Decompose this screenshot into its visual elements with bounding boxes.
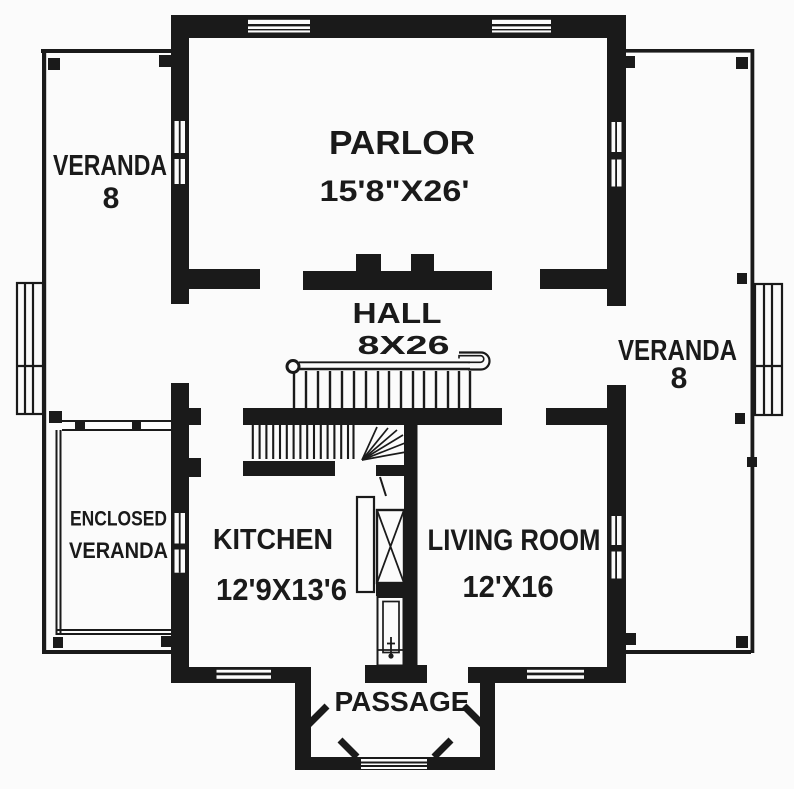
svg-text:PASSAGE: PASSAGE (335, 686, 470, 717)
svg-text:VERANDA: VERANDA (53, 150, 167, 182)
svg-text:8: 8 (671, 362, 688, 395)
svg-text:ENCLOSED: ENCLOSED (70, 508, 167, 531)
svg-text:12'9X13'6: 12'9X13'6 (216, 572, 347, 607)
svg-text:KITCHEN: KITCHEN (213, 524, 333, 556)
svg-text:HALL: HALL (353, 298, 442, 330)
svg-text:LIVING ROOM: LIVING ROOM (428, 524, 601, 557)
svg-text:8: 8 (103, 182, 120, 215)
svg-text:15'8"X26': 15'8"X26' (320, 175, 470, 208)
svg-text:8X26: 8X26 (358, 330, 450, 360)
svg-text:VERANDA: VERANDA (69, 538, 168, 563)
svg-text:12'X16: 12'X16 (463, 569, 554, 604)
svg-text:PARLOR: PARLOR (329, 124, 475, 161)
